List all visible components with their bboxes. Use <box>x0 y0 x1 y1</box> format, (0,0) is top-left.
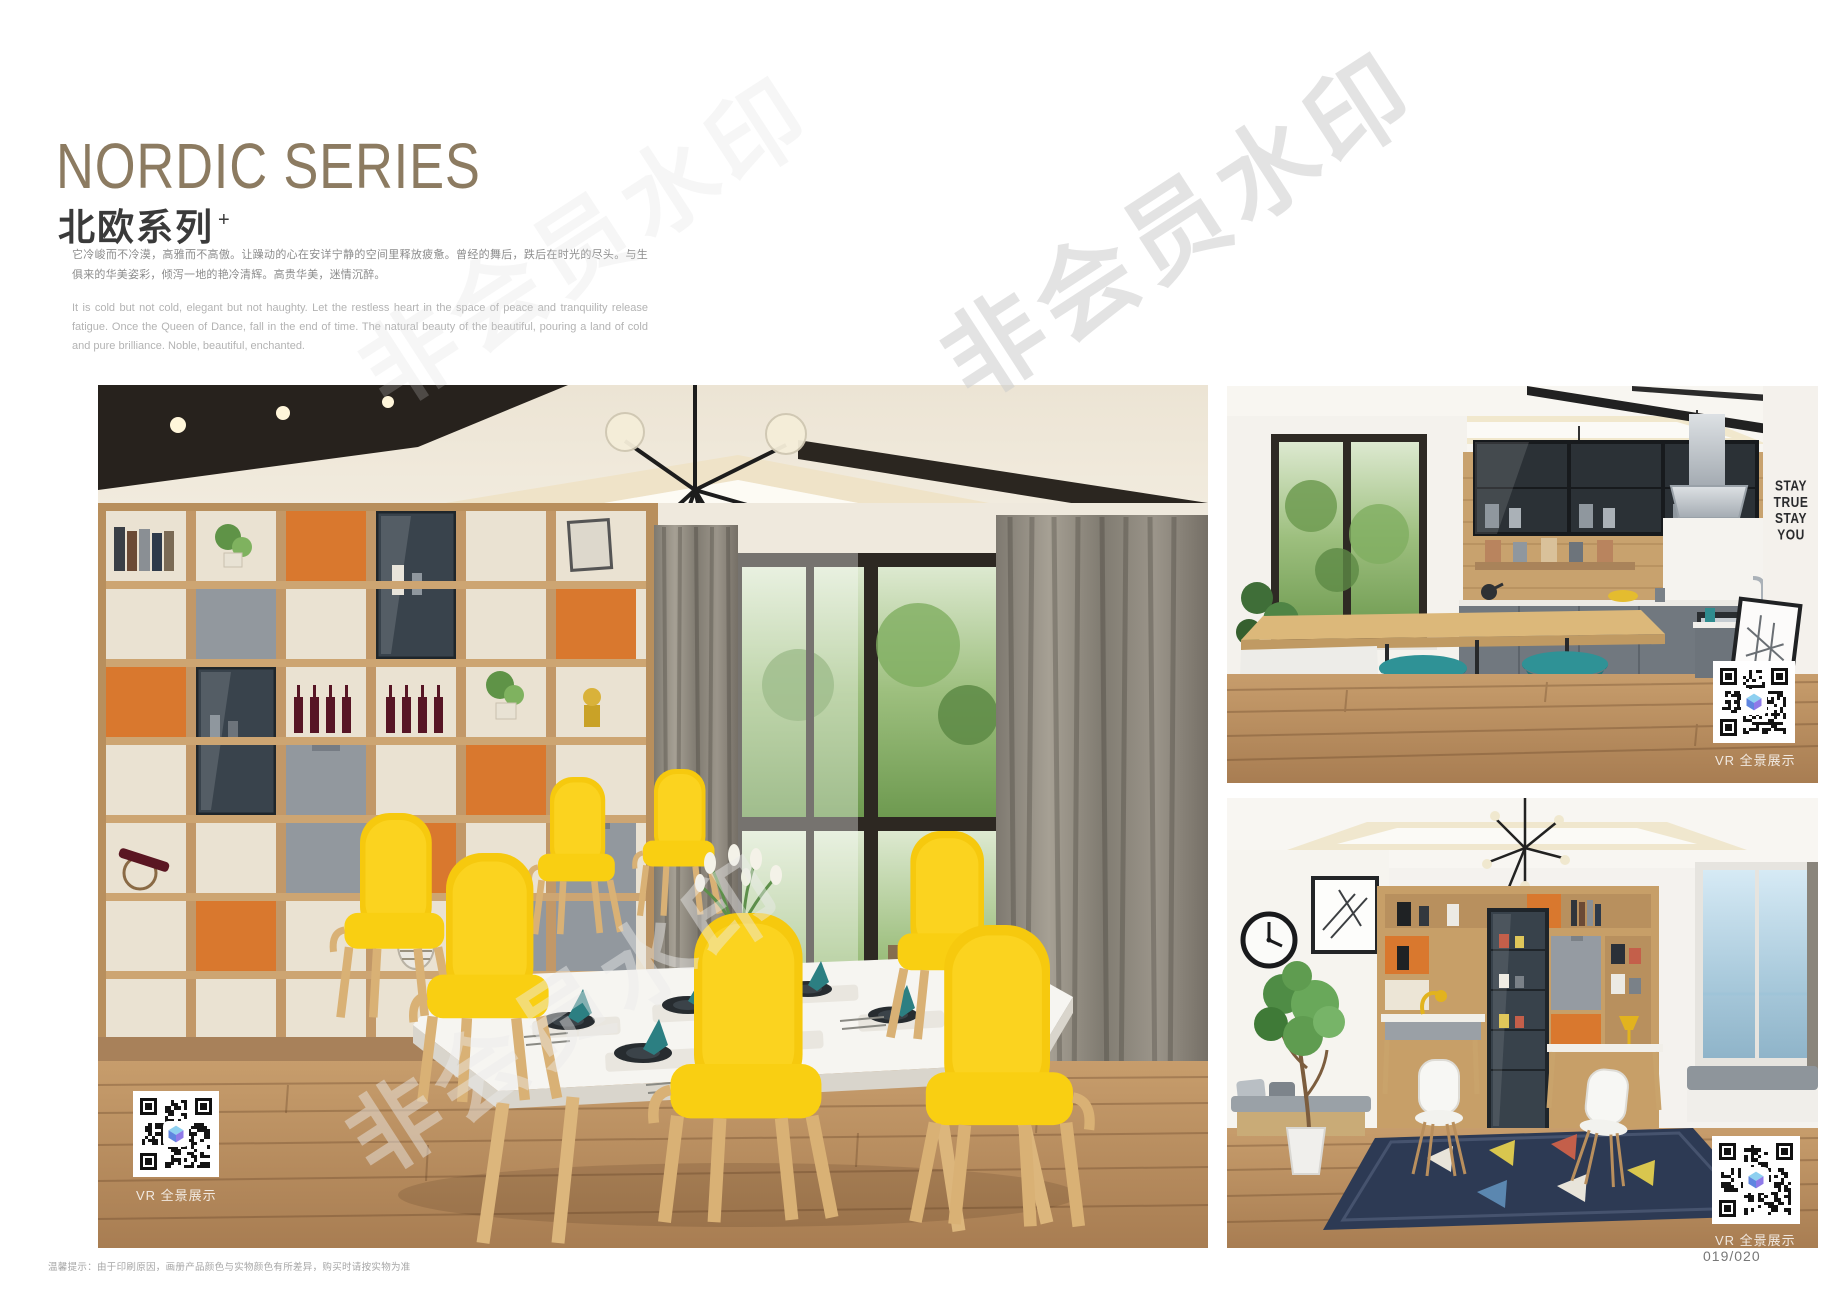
vr-cube-icon <box>163 1121 189 1147</box>
dining-qr-code <box>133 1091 219 1177</box>
qr-finder-icon <box>140 1153 157 1170</box>
dining-room-scene <box>98 385 1208 1248</box>
vr-cube-icon <box>1743 1167 1769 1193</box>
vr-cube-icon <box>1741 689 1767 715</box>
picture-frame <box>568 520 611 571</box>
title-cn-text: 北欧系列 <box>58 207 214 248</box>
title-plus-mark: + <box>218 209 232 231</box>
photo-kitchen: STAY TRUE STAY YOU VR 全景展示 <box>1227 386 1818 783</box>
wall-art-line: TRUE <box>1774 493 1809 511</box>
photo-dining-room: VR 全景展示 <box>98 385 1208 1248</box>
wall-art-stay-true: STAY TRUE STAY YOU <box>1773 478 1809 543</box>
vr-panorama-label: VR 全景展示 <box>136 1185 217 1204</box>
page-title-en: NORDIC SERIES <box>56 129 481 203</box>
wall-art-line: STAY <box>1775 509 1807 527</box>
page-title-cn: 北欧系列+ <box>58 197 232 251</box>
qr-finder-icon <box>1776 1143 1793 1160</box>
study-window <box>1695 862 1818 1072</box>
vr-panorama-label: VR 全景展示 <box>1715 1230 1796 1248</box>
catalog-page: NORDIC SERIES 北欧系列+ 它冷峻而不冷漠，高雅而不高傲。让躁动的心… <box>0 0 1836 1307</box>
study-qr-code <box>1712 1136 1800 1224</box>
abstract-art-frame <box>1313 878 1377 952</box>
trophy <box>583 688 601 727</box>
wall-art-line: YOU <box>1777 526 1805 544</box>
qr-finder-icon <box>1720 719 1737 736</box>
footer-note: 温馨提示：由于印刷原因，画册产品颜色与实物颜色有所差异，购买时请按实物为准 <box>48 1259 411 1273</box>
description-en: It is cold but not cold, elegant but not… <box>72 299 648 356</box>
vr-panorama-label: VR 全景展示 <box>1715 750 1796 769</box>
glass-display-cabinet <box>1489 910 1547 1130</box>
qr-finder-icon <box>1719 1143 1736 1160</box>
geometric-rug <box>1323 1128 1771 1230</box>
kitchen-qr-code <box>1713 661 1795 743</box>
wall-art-line: STAY <box>1775 477 1807 495</box>
qr-finder-icon <box>140 1098 157 1115</box>
page-number: 019/020 <box>1703 1248 1761 1264</box>
watermark-text: 非会员水印 <box>329 39 836 434</box>
qr-finder-icon <box>195 1098 212 1115</box>
description-cn: 它冷峻而不冷漠，高雅而不高傲。让躁动的心在安详宁静的空间里释放疲惫。曾经的舞后，… <box>72 245 648 285</box>
qr-finder-icon <box>1720 668 1737 685</box>
window-seat <box>1687 1066 1818 1122</box>
qr-finder-icon <box>1719 1200 1736 1217</box>
books <box>114 527 174 571</box>
watermark-text: 非会员水印 <box>909 12 1441 428</box>
wall-clock <box>1243 914 1295 966</box>
qr-finder-icon <box>1771 668 1788 685</box>
photo-study: VR 全景展示 <box>1227 798 1818 1248</box>
open-shelf <box>1475 538 1635 570</box>
